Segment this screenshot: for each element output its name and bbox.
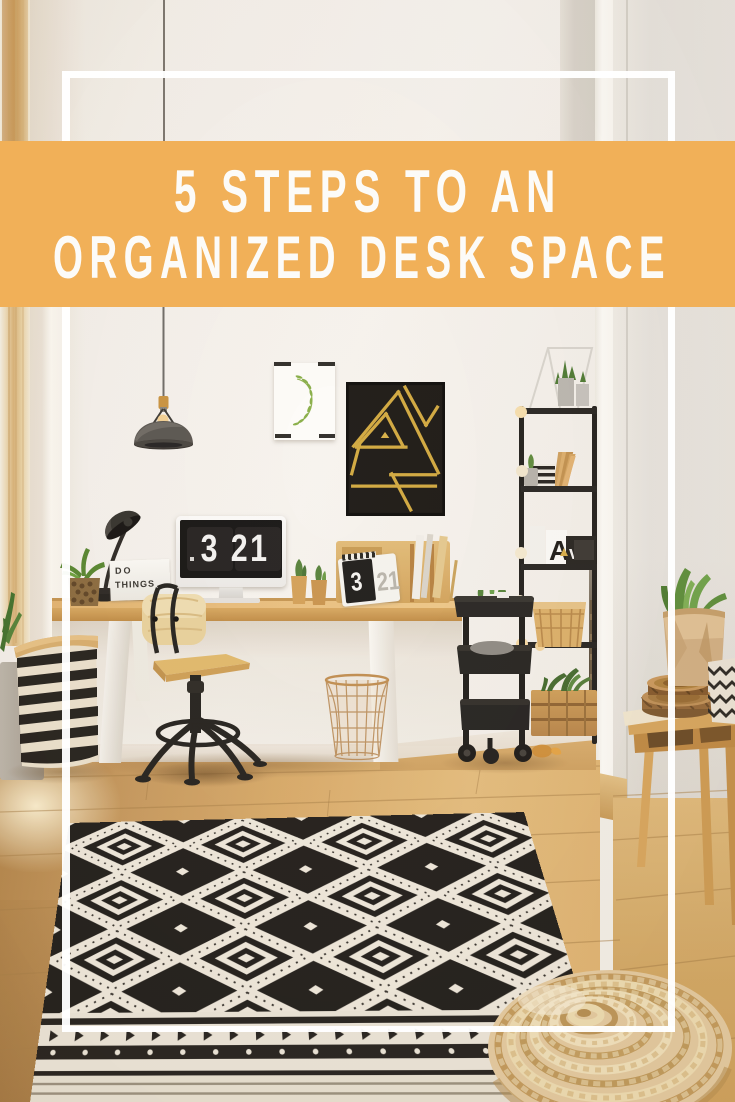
svg-text:ORGANIZED DESK SPACE: ORGANIZED DESK SPACE: [53, 224, 671, 291]
svg-text:5 STEPS TO AN: 5 STEPS TO AN: [174, 158, 562, 225]
